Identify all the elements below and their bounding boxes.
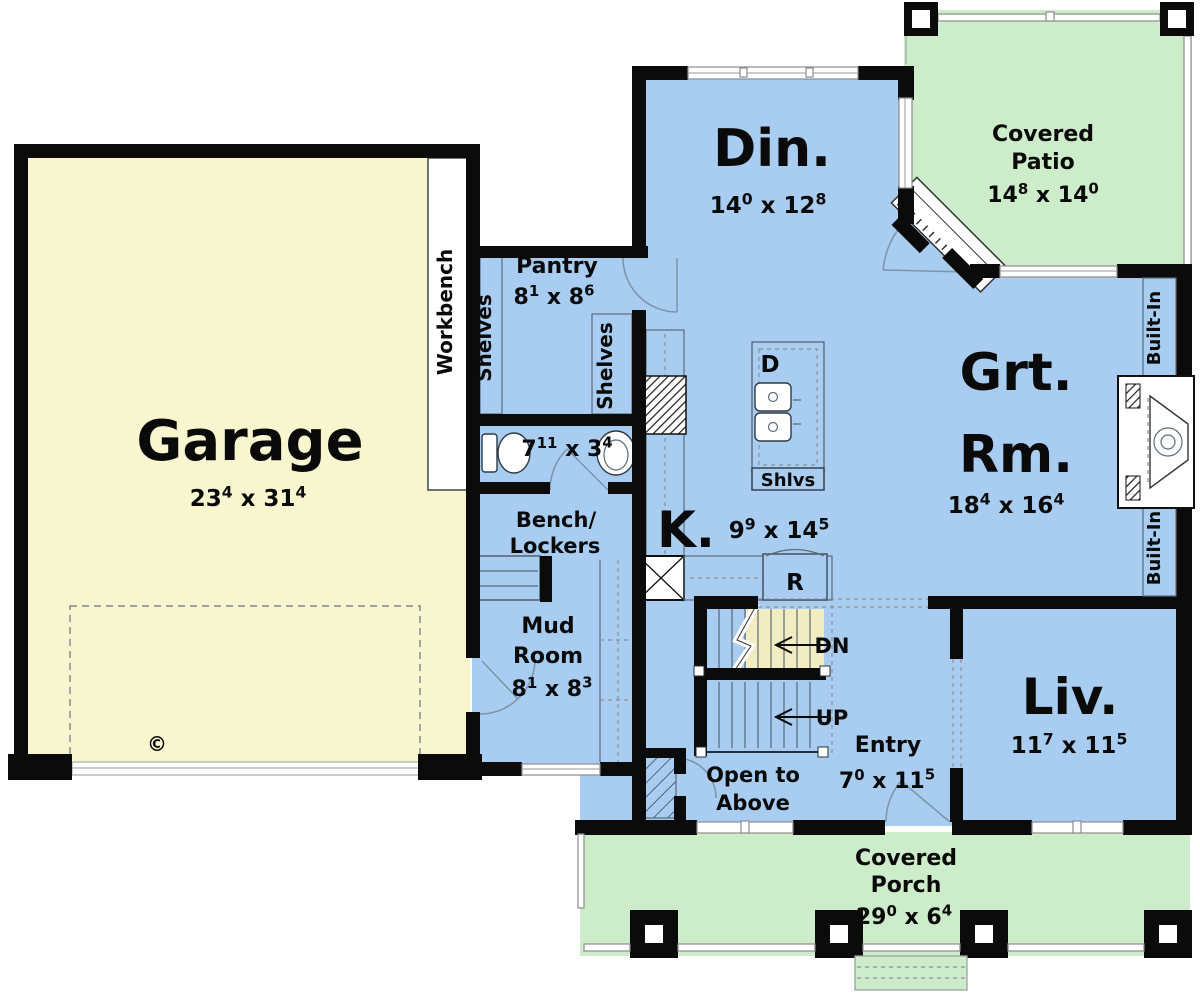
newel-post (818, 747, 828, 757)
wall-segment (472, 762, 522, 776)
stairs-up-label: UP (816, 706, 848, 730)
patio-post-center (912, 10, 930, 28)
dining-label: Din. (713, 119, 831, 179)
porch-label-1: Covered (855, 846, 957, 871)
porch-rail (584, 944, 630, 951)
front-steps (855, 956, 967, 990)
garage-dims: 234 x 314 (190, 482, 307, 512)
wall-segment (950, 768, 963, 822)
wall-segment (1176, 264, 1192, 834)
wall-segment (898, 66, 914, 100)
mud-room-label-2: Room (513, 644, 583, 669)
patio-label-2: Patio (1011, 150, 1075, 175)
porch-rail (1008, 944, 1144, 951)
wall-segment (472, 482, 550, 494)
porch-dims: 290 x 64 (856, 902, 952, 930)
porch-post-center (1159, 925, 1177, 943)
wall-segment (632, 310, 646, 762)
wall-segment (632, 66, 688, 80)
wall-segment (14, 144, 28, 776)
window-mullion (806, 68, 813, 77)
porch-label-2: Porch (871, 873, 942, 898)
island-shelves-label: Shlvs (761, 470, 815, 491)
pantry-label: Pantry (516, 254, 598, 279)
window-mullion (740, 68, 747, 77)
wall-segment (575, 820, 697, 835)
wall-segment (950, 609, 963, 659)
wall-segment (466, 144, 480, 658)
wall-segment (608, 482, 632, 494)
wall-segment (928, 596, 1192, 609)
newel-post (694, 666, 704, 676)
kitchen-label: K. (657, 501, 715, 559)
stair-landing-wall (700, 668, 826, 680)
refrigerator-label: R (786, 570, 804, 596)
window-mullion (1073, 821, 1081, 833)
wall-segment (793, 820, 885, 835)
wall-segment (632, 66, 646, 258)
pantry-dims: 81 x 86 (514, 282, 595, 310)
patio-beam-mullion (1046, 12, 1054, 21)
kitchen-dims: 99 x 145 (729, 514, 830, 544)
porch-post-center (975, 925, 993, 943)
shelves-left-label: Shelves (472, 294, 496, 382)
wall-segment (14, 144, 480, 158)
great-room-label-2: Rm. (959, 425, 1073, 485)
wall-corner-block (8, 754, 72, 780)
patio-post-center (1168, 10, 1186, 28)
great-room-dims: 184 x 164 (948, 489, 1065, 519)
bench-lockers-label-1: Bench/ (516, 508, 597, 532)
dishwasher-label: D (760, 352, 779, 378)
newel-post (820, 666, 830, 676)
porch-left-rail (578, 834, 584, 908)
window-mullion (741, 821, 749, 833)
copyright-mark: © (147, 732, 167, 756)
great-room-label-1: Grt. (960, 343, 1073, 403)
porch-rail (863, 944, 960, 951)
garage-label: Garage (136, 409, 363, 474)
bench-lockers-unit (478, 556, 540, 600)
bath-dims: 711 x 34 (521, 434, 612, 462)
patio-label-1: Covered (992, 122, 1094, 147)
built-in-upper-label: Built-In (1144, 291, 1165, 365)
fireplace-jamb-upper (1126, 384, 1140, 408)
wall-segment (1123, 820, 1192, 835)
wall-segment (540, 556, 552, 602)
living-label: Liv. (1022, 668, 1119, 726)
newel-post (696, 747, 706, 757)
sink-bowl-lower (755, 413, 791, 441)
shelves-right-label: Shelves (593, 322, 617, 410)
living-dims: 117 x 115 (1011, 729, 1128, 759)
patio-dims: 148 x 140 (987, 180, 1099, 208)
entry-dims: 70 x 115 (839, 766, 935, 794)
bench-lockers-label-2: Lockers (510, 534, 601, 558)
entry-label: Entry (855, 733, 921, 758)
sink-bowl-upper (755, 383, 791, 411)
open-above-label-1: Open to (706, 763, 800, 787)
porch-rail (678, 944, 815, 951)
open-above-label-2: Above (716, 791, 790, 815)
patio-right-beam (1184, 36, 1191, 266)
wall-segment (970, 264, 1000, 278)
dining-dims: 140 x 128 (710, 189, 827, 219)
fireplace-jamb-lower (1126, 476, 1140, 500)
wall-segment (952, 820, 1032, 835)
porch-post-center (645, 925, 663, 943)
wall-segment (674, 748, 686, 774)
floor-plan-drawing: Garage 234 x 314 Din. 140 x 128 Covered … (0, 0, 1200, 994)
workbench-label: Workbench (433, 249, 457, 375)
toilet-tank (482, 434, 497, 472)
mud-room-dims: 81 x 83 (512, 674, 593, 702)
wall-segment (632, 748, 646, 822)
wall-segment (472, 414, 632, 426)
mud-room-label-1: Mud (521, 614, 574, 639)
built-in-lower-label: Built-In (1144, 511, 1165, 585)
wall-segment (674, 796, 686, 822)
porch-steps (855, 956, 967, 990)
floor-plan: Garage 234 x 314 Din. 140 x 128 Covered … (0, 0, 1200, 994)
stairs-down-label: DN (814, 634, 849, 658)
porch-post-center (830, 925, 848, 943)
range-stove (640, 376, 686, 434)
